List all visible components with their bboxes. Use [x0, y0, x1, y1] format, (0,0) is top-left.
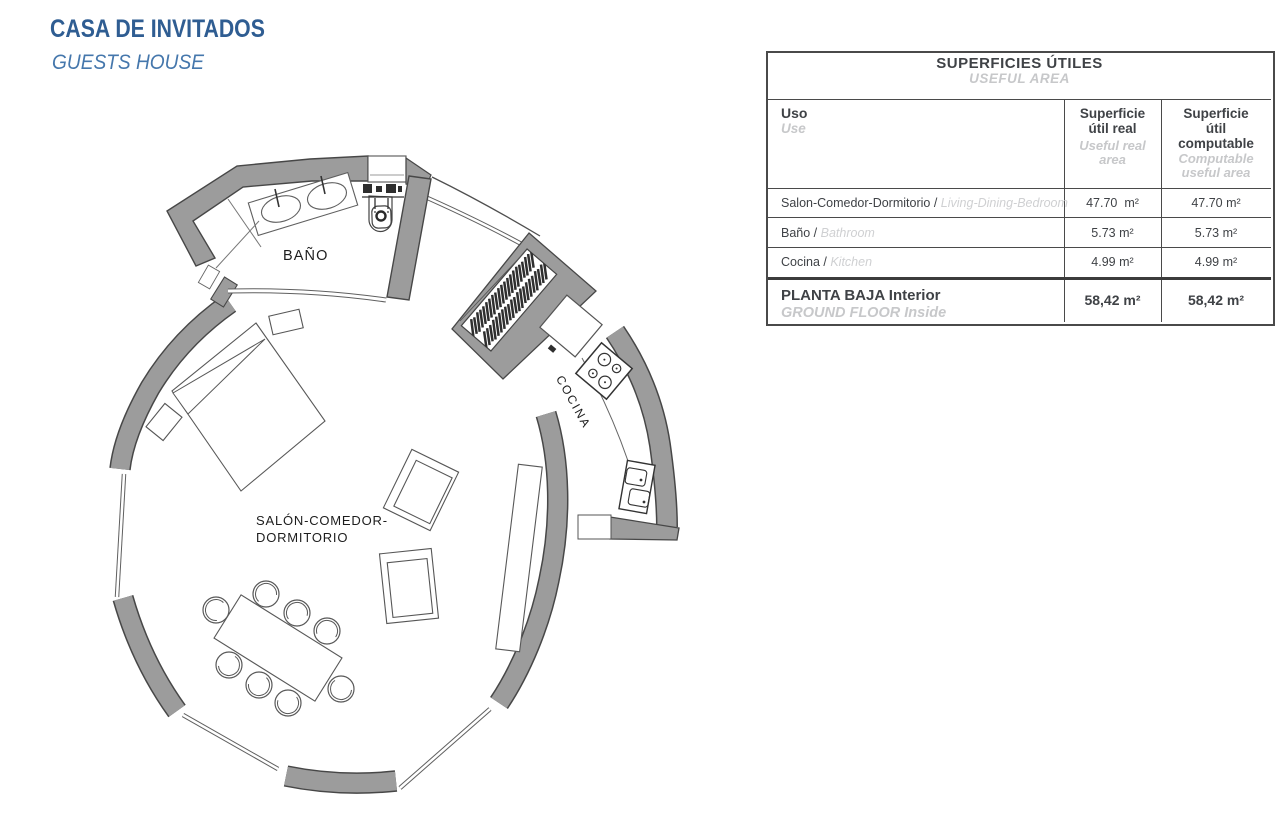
svg-text:BAÑO: BAÑO: [283, 247, 329, 264]
svg-text:DORMITORIO: DORMITORIO: [256, 530, 348, 545]
svg-text:SALÓN-COMEDOR-: SALÓN-COMEDOR-: [256, 513, 388, 528]
